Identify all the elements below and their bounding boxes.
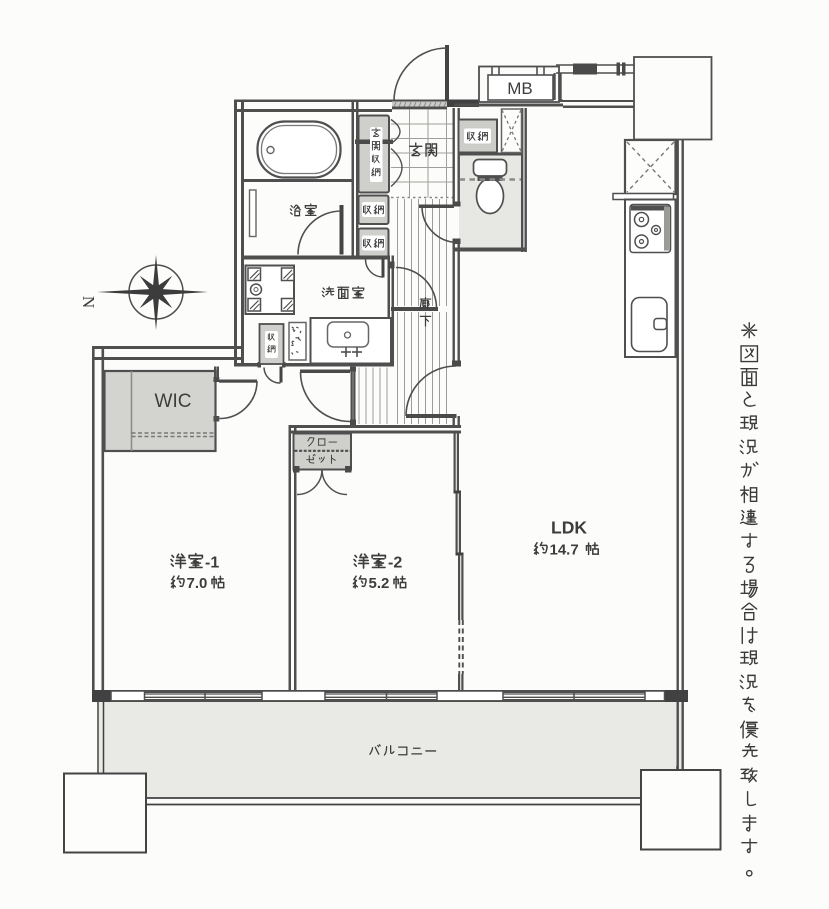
svg-text:7.0: 7.0 [187,575,208,592]
svg-text:-2: -2 [388,555,402,572]
svg-text:WIC: WIC [155,391,192,412]
svg-text:-1: -1 [205,555,219,572]
svg-text:LDK: LDK [551,518,587,538]
svg-text:5.2: 5.2 [369,575,390,592]
svg-text:N: N [79,296,98,308]
svg-text:14.7: 14.7 [550,542,579,559]
svg-text:MB: MB [507,79,533,98]
